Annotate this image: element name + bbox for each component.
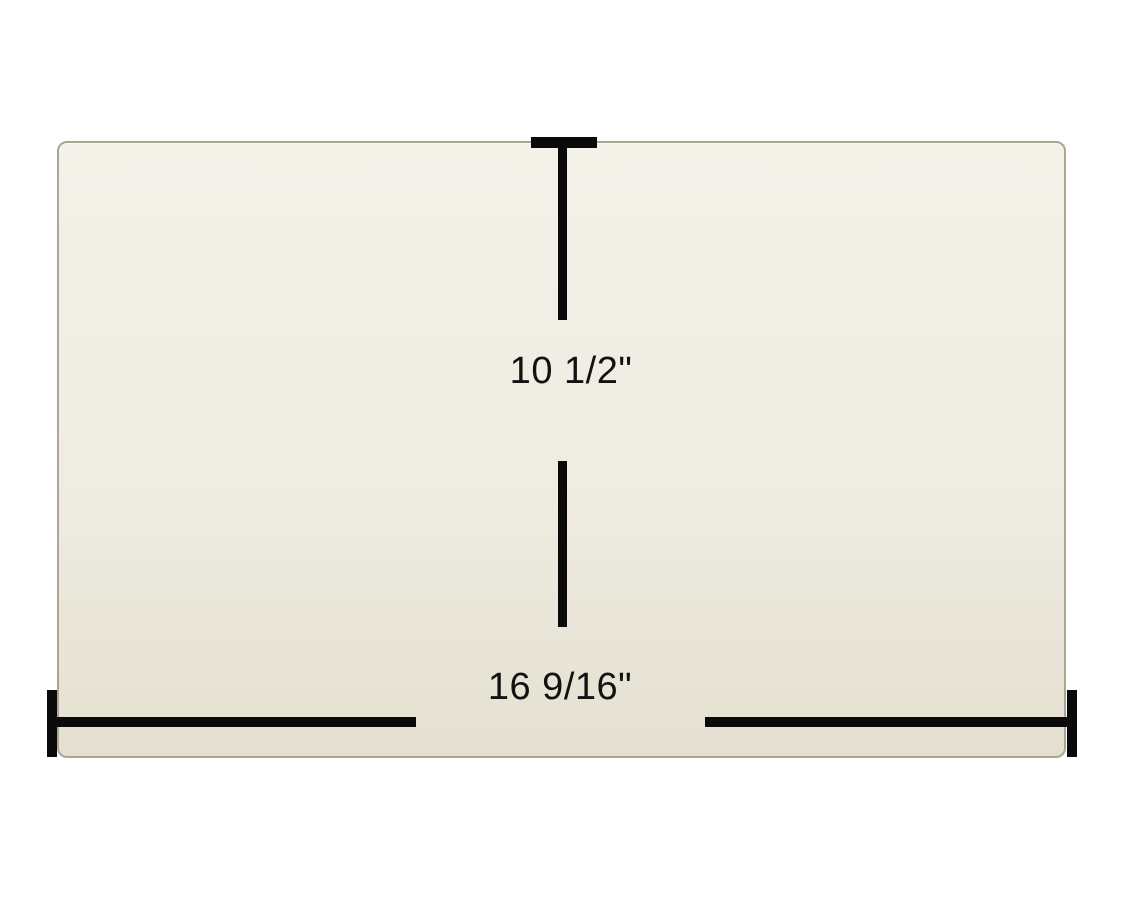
height-dim-line-lower	[558, 461, 567, 627]
height-dim-line-upper	[558, 147, 567, 320]
height-dim-label: 10 1/2"	[510, 352, 633, 390]
width-dim-label: 16 9/16"	[488, 668, 632, 706]
width-dim-line-right	[705, 717, 1071, 727]
dimension-diagram: 10 1/2" 16 9/16"	[0, 0, 1125, 905]
width-dim-line-left	[47, 717, 416, 727]
width-dim-right-tick	[1067, 690, 1077, 757]
